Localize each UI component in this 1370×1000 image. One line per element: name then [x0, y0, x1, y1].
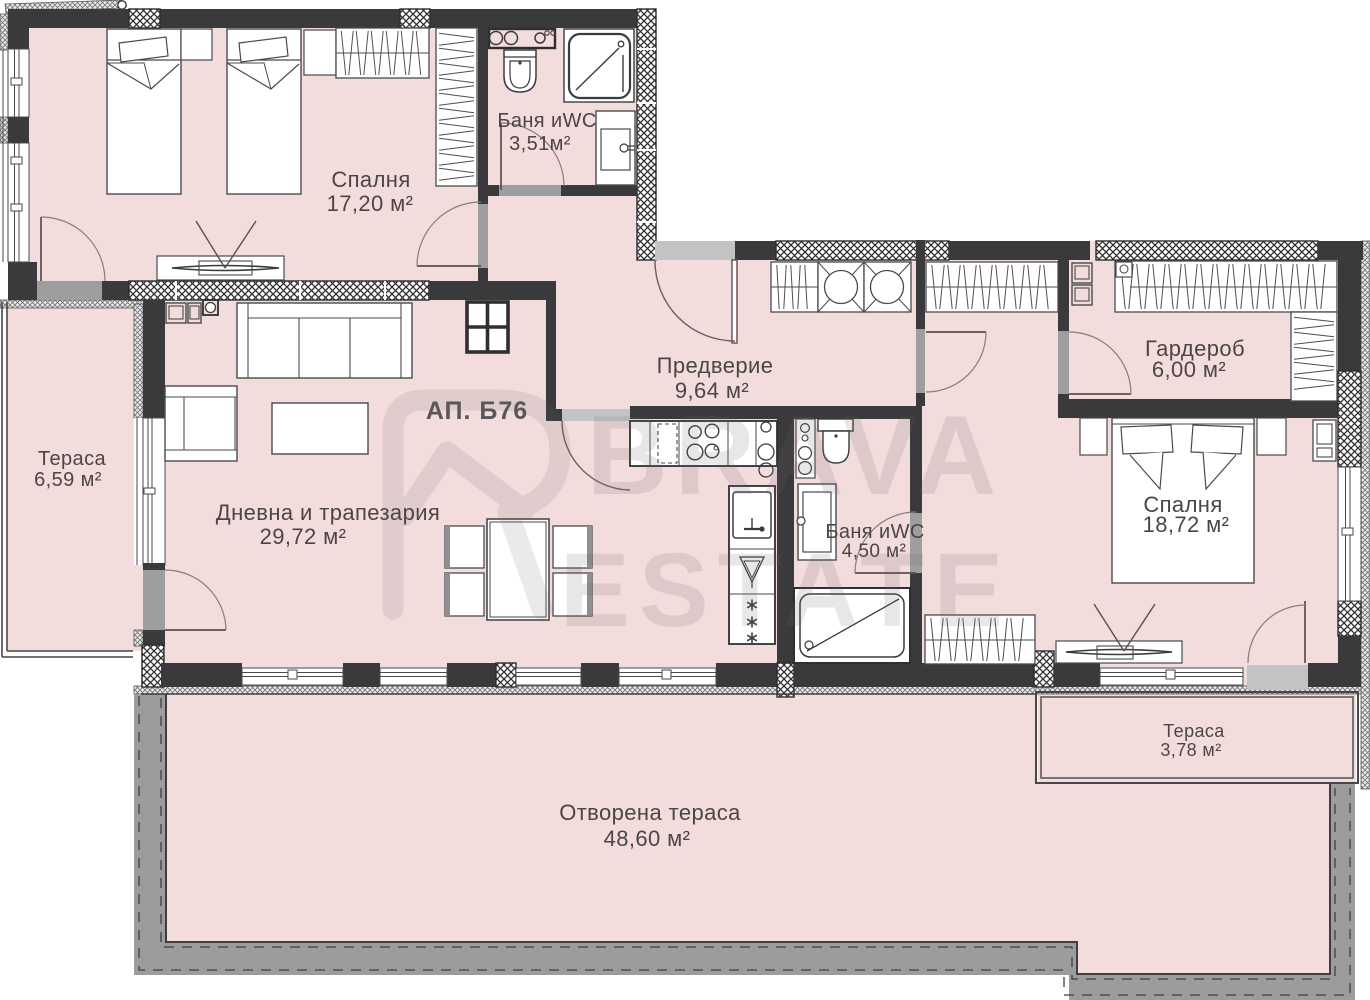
svg-text:ESTATE: ESTATE	[560, 532, 1013, 649]
svg-text:48,60 м²: 48,60 м²	[604, 826, 691, 851]
svg-text:Тераса: Тераса	[38, 448, 106, 470]
svg-text:Спалня: Спалня	[331, 167, 410, 192]
svg-text:Баня иWC: Баня иWC	[825, 521, 924, 543]
svg-text:17,20 м²: 17,20 м²	[327, 191, 414, 216]
svg-text:4,50 м²: 4,50 м²	[842, 541, 906, 562]
svg-text:29,72 м²: 29,72 м²	[260, 524, 347, 549]
svg-text:Дневна и трапезария: Дневна и трапезария	[216, 500, 440, 525]
svg-text:BRAVA: BRAVA	[587, 393, 1004, 518]
svg-text:АП. Б76: АП. Б76	[426, 397, 528, 425]
svg-text:Предверие: Предверие	[657, 353, 774, 378]
svg-text:3,51м²: 3,51м²	[509, 133, 571, 155]
svg-text:6,00 м²: 6,00 м²	[1152, 357, 1226, 382]
svg-text:Тераса: Тераса	[1163, 721, 1225, 741]
svg-text:Отворена тераса: Отворена тераса	[559, 800, 741, 825]
svg-text:3,78 м²: 3,78 м²	[1160, 740, 1221, 760]
svg-text:9,64 м²: 9,64 м²	[675, 378, 749, 403]
svg-text:6,59 м²: 6,59 м²	[34, 469, 102, 491]
svg-text:Баня иWC: Баня иWC	[497, 110, 596, 132]
svg-text:18,72 м²: 18,72 м²	[1143, 512, 1230, 537]
